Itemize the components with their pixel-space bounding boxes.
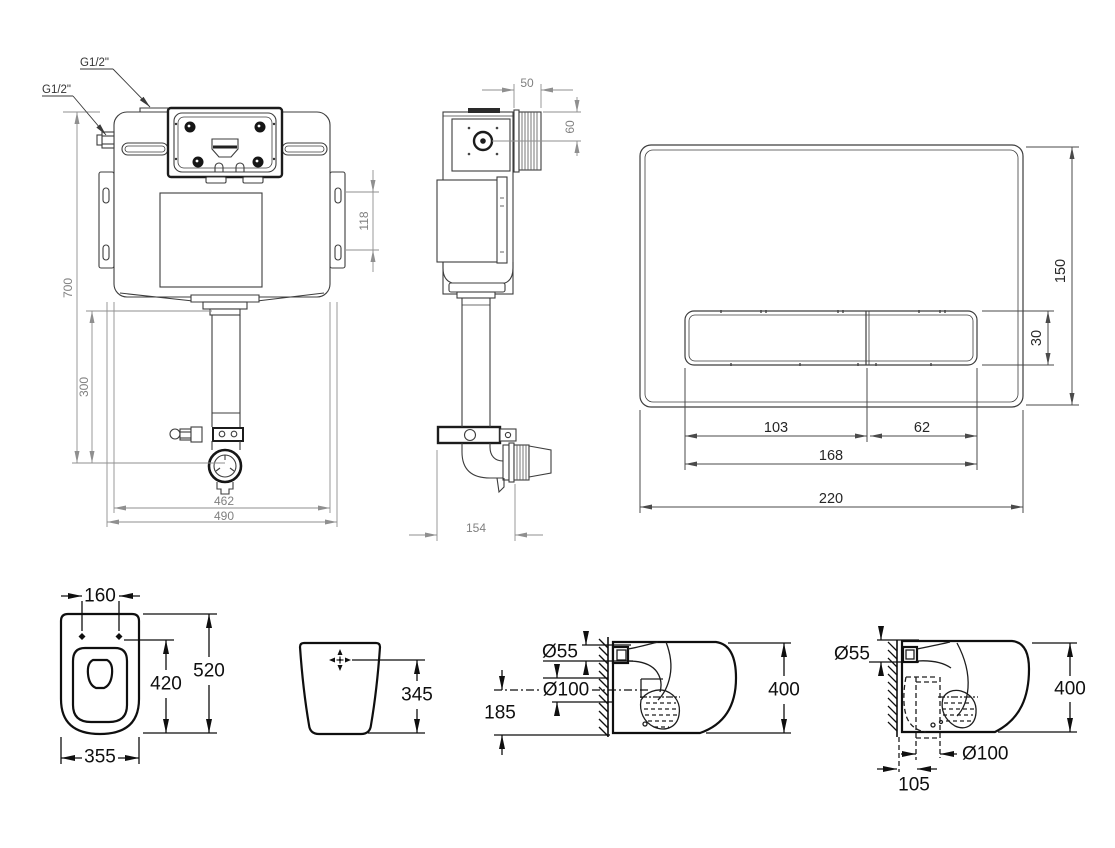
dim-105-label: 105	[898, 775, 930, 796]
dim-50: 50	[482, 76, 573, 108]
dim-185-label: 185	[484, 703, 516, 724]
cistern-side-view: 50 60 154	[409, 76, 581, 541]
handle-slot-right	[282, 143, 327, 155]
g12-left-label: G1/2"	[42, 84, 71, 96]
dim-150-label: 150	[1053, 259, 1069, 283]
dim-154-label: 154	[466, 521, 486, 535]
dim-220-label: 220	[819, 491, 843, 507]
technical-drawing-page: 700 300 118 462 490 G1/2"	[0, 0, 1115, 848]
dim-462-490: 462 490	[107, 302, 337, 527]
g12-top-label: G1/2"	[80, 57, 109, 69]
dim-118: 118	[346, 170, 379, 272]
bolt-icon	[185, 122, 196, 133]
flush-valve-assembly	[120, 293, 324, 494]
dim-420-label: 420	[150, 674, 182, 695]
pan-side-wall-outlet-view: Ø55 Ø100 185 400	[484, 631, 800, 755]
dim-105: 105	[877, 769, 937, 796]
dim-300-label: 300	[77, 377, 91, 397]
top-tab	[468, 108, 500, 113]
side-flush-pipe	[438, 262, 551, 492]
bolt-icon	[255, 122, 266, 133]
handle-slot-left	[122, 143, 168, 155]
dim-30-label: 30	[1029, 330, 1045, 346]
dim-400-label: 400	[1054, 679, 1086, 700]
panel-rail	[497, 177, 507, 263]
dim-118-label: 118	[357, 211, 371, 230]
inlet-spigot	[903, 647, 917, 662]
side-front-panel	[437, 180, 500, 262]
dim-50-label: 50	[520, 76, 534, 90]
dim-d100-floor: Ø100	[901, 744, 1008, 765]
dim-150: 150	[1026, 147, 1079, 405]
pan-top-view: 160 520 420 355	[61, 586, 225, 768]
dim-462-label: 462	[214, 494, 234, 508]
dim-d100-label: Ø100	[543, 680, 589, 701]
dim-60-label: 60	[563, 120, 577, 134]
dim-345-label: 345	[401, 685, 433, 706]
outlet-spigot	[529, 446, 551, 477]
dim-355: 355	[61, 737, 139, 768]
dim-400-label: 400	[768, 680, 800, 701]
access-box	[168, 108, 282, 183]
dim-700-label: 700	[61, 278, 75, 298]
flush-inlet	[88, 660, 112, 688]
bolt-icon	[253, 157, 264, 168]
dim-62-label: 62	[914, 420, 930, 436]
dim-168-label: 168	[819, 448, 843, 464]
dim-520-label: 520	[193, 661, 225, 682]
pan-side-outline	[613, 642, 736, 733]
top-inlet-tab	[140, 108, 168, 112]
wall-hatch	[888, 640, 897, 737]
leader-g12-left: G1/2"	[42, 84, 106, 135]
wall-hatch	[599, 637, 608, 737]
pan-side-floor-outlet-view: Ø55 400 Ø100 105	[834, 627, 1086, 796]
dim-103-label: 103	[764, 420, 788, 436]
dim-d55-label: Ø55	[834, 644, 870, 665]
flush-buttons	[685, 310, 977, 366]
flush-plate-outline	[640, 145, 1023, 407]
flush-plate-view: 150 30 103 62 168 220	[640, 145, 1079, 513]
dim-355-label: 355	[84, 747, 116, 768]
dim-168: 168	[685, 448, 977, 464]
dim-160-label: 160	[84, 586, 116, 607]
dim-d55-label: Ø55	[542, 642, 578, 663]
dim-490-label: 490	[214, 509, 234, 523]
pan-rear-view: 345	[300, 643, 433, 734]
pipe-clamp	[213, 428, 243, 441]
dim-d100-label: Ø100	[962, 744, 1008, 765]
cistern-front-view: 700 300 118 462 490 G1/2"	[42, 57, 379, 527]
bolt-icon	[193, 157, 204, 168]
leader-g12-top: G1/2"	[80, 57, 150, 107]
sanitary-technical-drawing: 700 300 118 462 490 G1/2"	[0, 0, 1115, 848]
pan-side-outline	[902, 641, 1029, 732]
